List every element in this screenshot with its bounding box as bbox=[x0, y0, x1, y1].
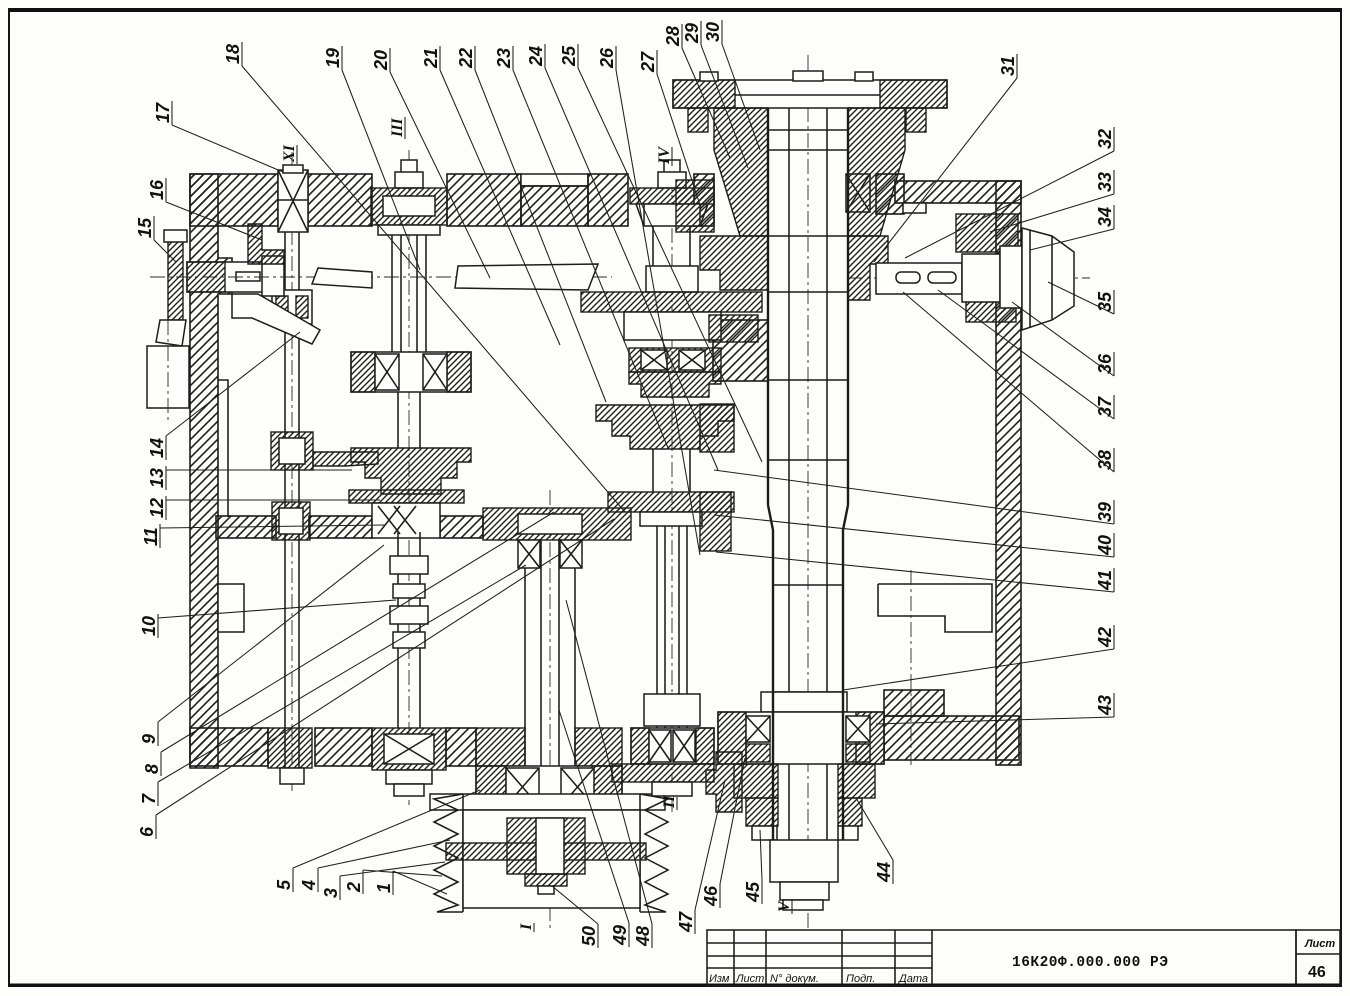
svg-text:8: 8 bbox=[142, 764, 162, 774]
svg-text:12: 12 bbox=[147, 498, 167, 518]
svg-text:Изм: Изм bbox=[709, 973, 730, 985]
svg-text:9: 9 bbox=[139, 734, 159, 744]
svg-text:46: 46 bbox=[701, 885, 721, 907]
svg-text:42: 42 bbox=[1095, 627, 1115, 648]
svg-text:39: 39 bbox=[1095, 502, 1115, 522]
svg-text:21: 21 bbox=[421, 48, 441, 69]
svg-text:13: 13 bbox=[147, 468, 167, 488]
svg-text:40: 40 bbox=[1095, 535, 1115, 556]
svg-text:14: 14 bbox=[147, 438, 167, 458]
svg-text:V: V bbox=[776, 900, 793, 912]
svg-text:16К20Ф.000.000 РЭ: 16К20Ф.000.000 РЭ bbox=[1012, 955, 1168, 971]
svg-text:49: 49 bbox=[610, 925, 630, 946]
svg-text:19: 19 bbox=[323, 48, 343, 68]
svg-text:23: 23 bbox=[494, 48, 514, 69]
svg-text:29: 29 bbox=[682, 23, 702, 44]
svg-text:41: 41 bbox=[1095, 570, 1115, 591]
svg-text:44: 44 bbox=[874, 862, 894, 883]
svg-text:15: 15 bbox=[135, 217, 155, 238]
svg-text:Дата: Дата bbox=[897, 973, 928, 985]
svg-text:17: 17 bbox=[153, 102, 173, 123]
svg-text:30: 30 bbox=[703, 22, 723, 42]
svg-text:4: 4 bbox=[299, 880, 319, 891]
svg-text:N° докум.: N° докум. bbox=[770, 973, 819, 985]
svg-text:22: 22 bbox=[456, 48, 476, 69]
svg-text:Лист: Лист bbox=[735, 973, 764, 985]
svg-text:6: 6 bbox=[137, 826, 157, 837]
svg-text:3: 3 bbox=[321, 888, 341, 898]
svg-text:7: 7 bbox=[139, 793, 159, 804]
svg-text:III: III bbox=[389, 118, 406, 138]
svg-text:Подп.: Подп. bbox=[846, 973, 875, 985]
svg-text:47: 47 bbox=[676, 911, 696, 933]
svg-text:IV: IV bbox=[656, 146, 673, 165]
svg-text:Лист: Лист bbox=[1304, 938, 1335, 950]
svg-text:5: 5 bbox=[274, 879, 294, 890]
svg-text:11: 11 bbox=[141, 527, 161, 546]
svg-text:25: 25 bbox=[559, 45, 579, 67]
svg-text:16: 16 bbox=[147, 179, 167, 200]
svg-text:48: 48 bbox=[633, 926, 653, 947]
svg-text:33: 33 bbox=[1095, 172, 1115, 192]
svg-text:46: 46 bbox=[1308, 964, 1326, 981]
svg-text:24: 24 bbox=[526, 46, 546, 67]
svg-text:26: 26 bbox=[597, 47, 617, 69]
svg-text:31: 31 bbox=[998, 56, 1018, 76]
svg-text:10: 10 bbox=[139, 616, 159, 636]
svg-text:20: 20 bbox=[371, 50, 391, 71]
svg-text:38: 38 bbox=[1095, 450, 1115, 470]
svg-text:36: 36 bbox=[1095, 353, 1115, 374]
svg-text:27: 27 bbox=[638, 51, 658, 73]
svg-text:28: 28 bbox=[663, 26, 683, 47]
svg-text:35: 35 bbox=[1095, 291, 1115, 312]
svg-text:50: 50 bbox=[579, 926, 599, 946]
svg-text:2: 2 bbox=[344, 882, 364, 893]
svg-text:37: 37 bbox=[1095, 396, 1115, 417]
svg-text:45: 45 bbox=[743, 881, 763, 903]
svg-text:34: 34 bbox=[1095, 207, 1115, 227]
svg-text:32: 32 bbox=[1095, 129, 1115, 149]
svg-text:XI: XI bbox=[281, 144, 298, 163]
svg-text:18: 18 bbox=[223, 44, 243, 64]
svg-text:1: 1 bbox=[374, 883, 394, 893]
svg-text:43: 43 bbox=[1095, 695, 1115, 716]
svg-text:I: I bbox=[518, 923, 535, 931]
svg-text:II: II bbox=[661, 795, 678, 809]
